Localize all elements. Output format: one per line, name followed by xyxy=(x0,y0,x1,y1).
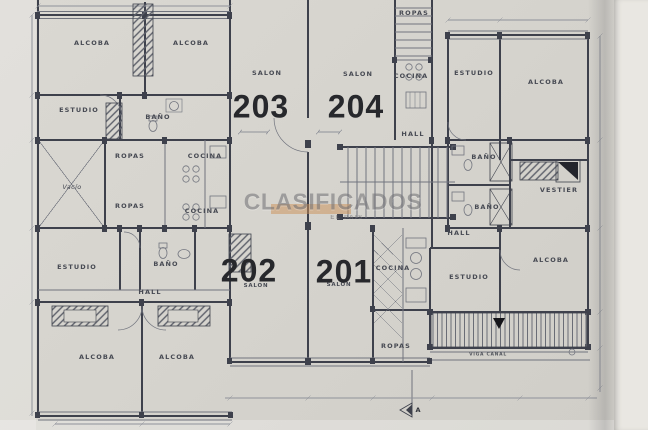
duct-triangle-icon xyxy=(558,162,578,180)
room-label-alcoba-2: ALCOBA xyxy=(173,39,209,47)
watermark-text: CLASIFICADOS xyxy=(244,189,423,216)
room-label-ropas-1: ROPAS xyxy=(115,152,145,160)
room-label-bano-4: BAÑO xyxy=(153,260,178,268)
unit-number-203: 203 xyxy=(233,89,289,126)
section-marker-label: A xyxy=(415,406,420,414)
balcony-note: VIGA CANAL xyxy=(469,353,507,358)
room-label-alcoba-6: ALCOBA xyxy=(159,353,195,361)
room-label-bano-1: BAÑO xyxy=(145,113,170,121)
room-label-estudio-4: ESTUDIO xyxy=(57,263,97,271)
room-label-salon-204: SALON xyxy=(343,70,373,78)
room-label-bano-3: BAÑO xyxy=(474,203,499,211)
unit-number-204: 204 xyxy=(328,89,384,126)
page-fold-shadow xyxy=(588,0,614,430)
room-label-alcoba-5: ALCOBA xyxy=(79,353,115,361)
room-label-cocina-201: COCINA xyxy=(376,264,411,272)
room-label-cocina-204: COCINA xyxy=(394,72,429,80)
balcony-hatch xyxy=(431,313,587,347)
room-label-alcoba-3: ALCOBA xyxy=(528,78,564,86)
room-label-hall-1: HALL xyxy=(401,130,424,138)
room-label-cocina-2: COCINA xyxy=(185,207,220,215)
room-label-ropas-2: ROPAS xyxy=(115,202,145,210)
watermark-subtext: EL PAIS xyxy=(330,215,363,221)
room-label-salon-203: SALON xyxy=(252,69,282,77)
fixtures xyxy=(149,64,472,302)
page-right-edge xyxy=(614,0,648,430)
unit-number-201: 201 xyxy=(316,254,372,291)
room-label-bano-2: BAÑO xyxy=(471,153,496,161)
room-label-vacio: Vacío xyxy=(62,183,81,191)
room-label-vestier: VESTIER xyxy=(540,186,578,194)
room-label-ropas-3: ROPAS xyxy=(399,9,429,17)
room-label-alcoba-4: ALCOBA xyxy=(533,256,569,264)
room-label-ropas-4: ROPAS xyxy=(381,342,411,350)
room-label-estudio-1: ESTUDIO xyxy=(59,106,99,114)
room-label-cocina-1: COCINA xyxy=(188,152,223,160)
unit-number-202: 202 xyxy=(221,253,277,290)
room-label-estudio-2: ESTUDIO xyxy=(454,69,494,77)
room-label-hall-3: HALL xyxy=(138,288,161,296)
room-label-hall-2: HALL xyxy=(447,229,470,237)
room-label-estudio-3: ESTUDIO xyxy=(449,273,489,281)
hatched-areas xyxy=(52,4,587,347)
room-label-alcoba-1: ALCOBA xyxy=(74,39,110,47)
